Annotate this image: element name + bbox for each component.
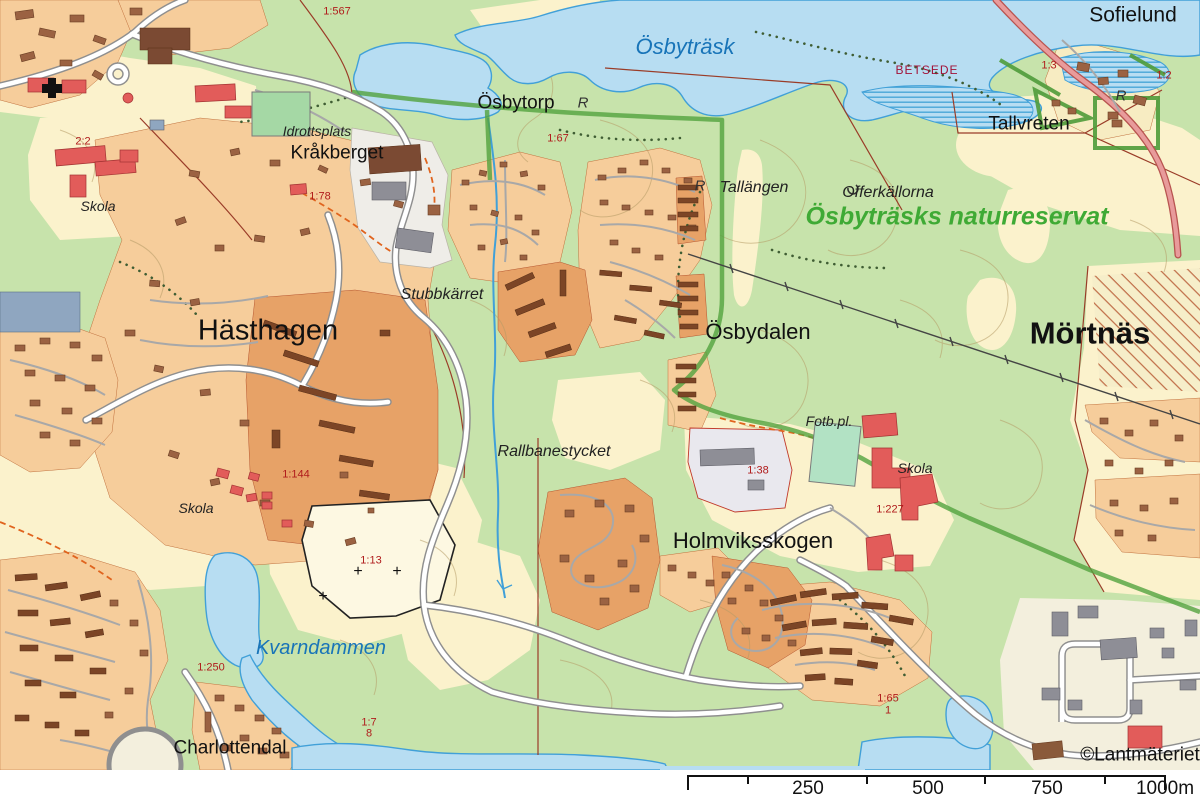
scalebar-label-250: 250 (792, 778, 824, 800)
map-artwork (0, 0, 1200, 770)
scalebar-label-750: 750 (1031, 778, 1063, 800)
orchard-area (1092, 268, 1200, 392)
map-export-page: 1:567ÖsbyträskÖsbytorpSofielundBETSEDETa… (0, 0, 1200, 800)
scalebar: 2505007501000m (0, 770, 1200, 800)
map-footer: 2505007501000m (0, 770, 1200, 800)
scalebar-label-1000m: 1000m (1136, 778, 1194, 800)
map-canvas[interactable]: 1:567ÖsbyträskÖsbytorpSofielundBETSEDETa… (0, 0, 1200, 770)
scalebar-ticks (0, 770, 1200, 800)
scalebar-label-500: 500 (912, 778, 944, 800)
